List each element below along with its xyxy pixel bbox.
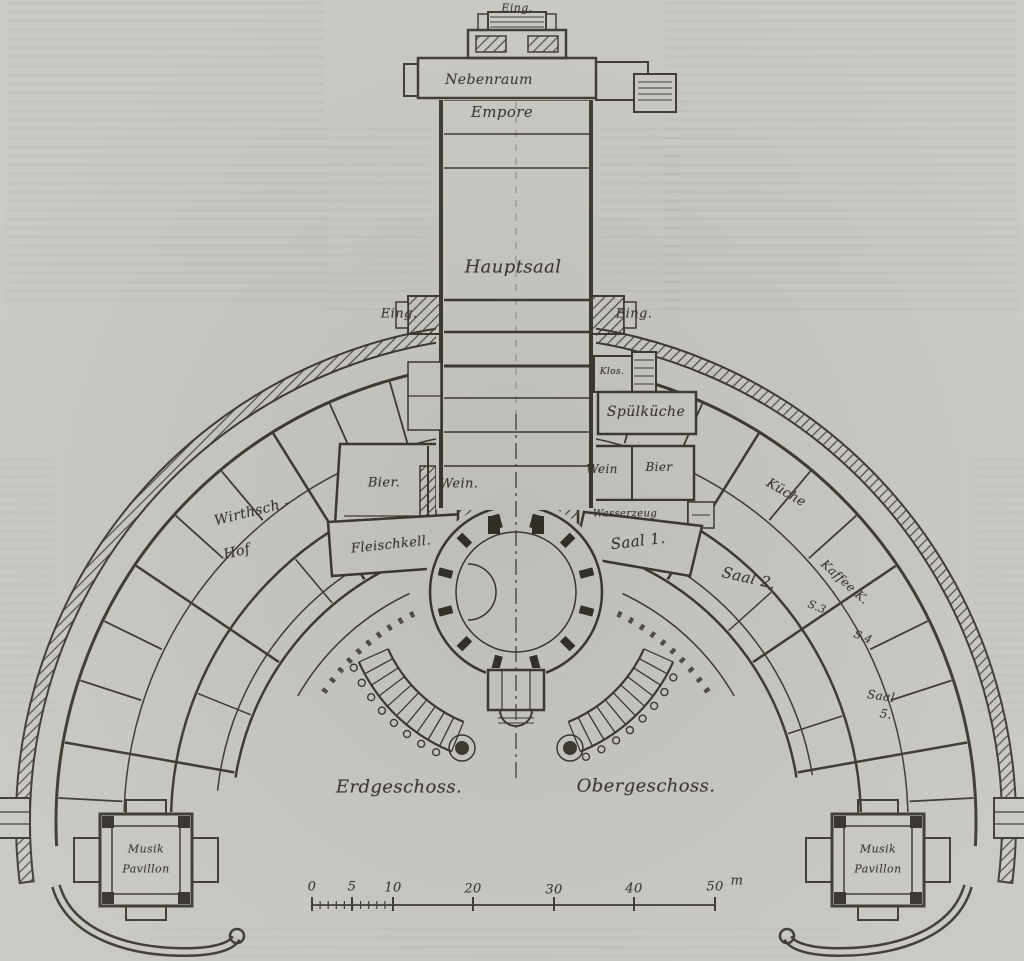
label-saal5-2: 5. [879,706,893,722]
label-bier-right: Bier [645,460,672,474]
scale-tick-40: 40 [625,882,642,897]
label-wasserzeug: Wasserzeug [593,509,657,520]
label-kloset: Klos. [600,367,625,377]
label-wein-right: Wein [586,462,618,476]
north-entrance-block [404,12,676,112]
music-pavilion-right [806,800,950,920]
scale-tick-10: 10 [384,881,401,896]
label-bier-left: Bier. [368,476,400,491]
scale-unit: m [731,874,744,889]
label-musik-pavillon-right-2: Pavillon [854,863,901,876]
label-entrance-top: Eing. [501,2,532,15]
label-spuelkueche: Spülküche [607,404,685,420]
hauptsaal-tower [436,54,596,510]
label-musik-pavillon-right-1: Musik [860,843,896,856]
music-pavilion-left [74,800,218,920]
label-entrance-left: Eing. [381,307,417,322]
scale-tick-20: 20 [464,882,481,897]
label-nebenraum: Nebenraum [445,72,533,88]
caption-erdgeschoss: Erdgeschoss. [336,777,462,798]
caption-obergeschoss: Obergeschoss. [577,776,716,797]
floor-plan-drawing [0,0,1024,961]
label-musik-pavillon-left-1: Musik [128,843,164,856]
scale-tick-0: 0 [308,880,317,895]
scanned-floor-plan-page: Eing. Nebenraum Empore Hauptsaal Eing. E… [0,0,1024,961]
label-entrance-right: Eing. [616,307,652,322]
label-musik-pavillon-left-2: Pavillon [122,863,169,876]
scale-bar [312,897,715,911]
label-hauptsaal: Hauptsaal [465,257,562,278]
label-empore: Empore [471,103,533,121]
scale-tick-30: 30 [545,883,562,898]
scale-tick-50: 50 [706,880,723,895]
scale-tick-5: 5 [348,880,357,895]
label-wein-left: Wein. [440,477,479,492]
